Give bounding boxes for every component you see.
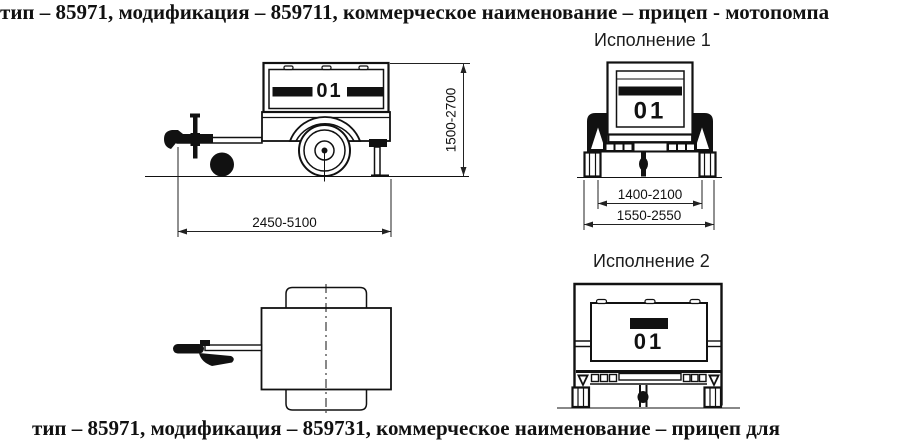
rear1-wheel-right xyxy=(700,153,716,177)
dim-overall-height: 1500-2700 xyxy=(390,64,470,177)
dim-arrow xyxy=(382,229,391,235)
drawings-canvas: 01 1500-2 xyxy=(0,0,900,443)
dim-arrow xyxy=(461,167,467,176)
technical-drawing-page: тип – 85971, модификация – 859711, комме… xyxy=(0,0,900,443)
rear1-box-number-label: 01 xyxy=(634,98,667,125)
side-view-drawing: 01 xyxy=(145,63,469,182)
jockey-handle xyxy=(190,114,200,118)
side-view-wheel xyxy=(290,117,360,182)
rear2-stripe xyxy=(630,318,668,329)
dim-overall-length: 2450-5100 xyxy=(178,147,391,237)
top-view-drawing xyxy=(173,284,391,414)
dim-arrow xyxy=(178,229,187,235)
jockey-clamp xyxy=(191,133,201,146)
overall-height-label: 1500-2700 xyxy=(444,88,459,153)
top-hitch-handle xyxy=(173,344,204,354)
rear-view-2-drawing: 01 xyxy=(557,284,740,408)
dim-arrow xyxy=(598,201,607,207)
hitch-coupling xyxy=(164,130,213,149)
rear2-wheel-right xyxy=(705,388,722,408)
dim-track-width: 1400-2100 xyxy=(598,180,702,209)
track-width-label: 1400-2100 xyxy=(618,187,683,202)
rear-support-leg xyxy=(369,139,389,176)
side-stripe-left xyxy=(273,87,313,97)
top-hitch-lever xyxy=(199,353,234,366)
dim-arrow xyxy=(705,222,714,228)
rear1-stripe xyxy=(619,87,683,96)
dim-arrow xyxy=(584,222,593,228)
side-box-number-label: 01 xyxy=(316,80,342,102)
overall-width-label: 1550-2550 xyxy=(617,208,682,223)
top-view-drawbar xyxy=(173,340,262,366)
side-stripe-right xyxy=(347,87,384,97)
rear-view-1-drawing: 01 xyxy=(577,63,722,178)
jockey-wheel xyxy=(210,153,234,177)
rear2-box-number-label: 01 xyxy=(634,329,664,354)
rear1-wheel-left xyxy=(585,153,601,177)
overall-length-label: 2450-5100 xyxy=(252,215,317,230)
dim-arrow xyxy=(693,201,702,207)
rear2-wheel-left xyxy=(573,388,590,408)
dim-arrow xyxy=(461,64,467,73)
